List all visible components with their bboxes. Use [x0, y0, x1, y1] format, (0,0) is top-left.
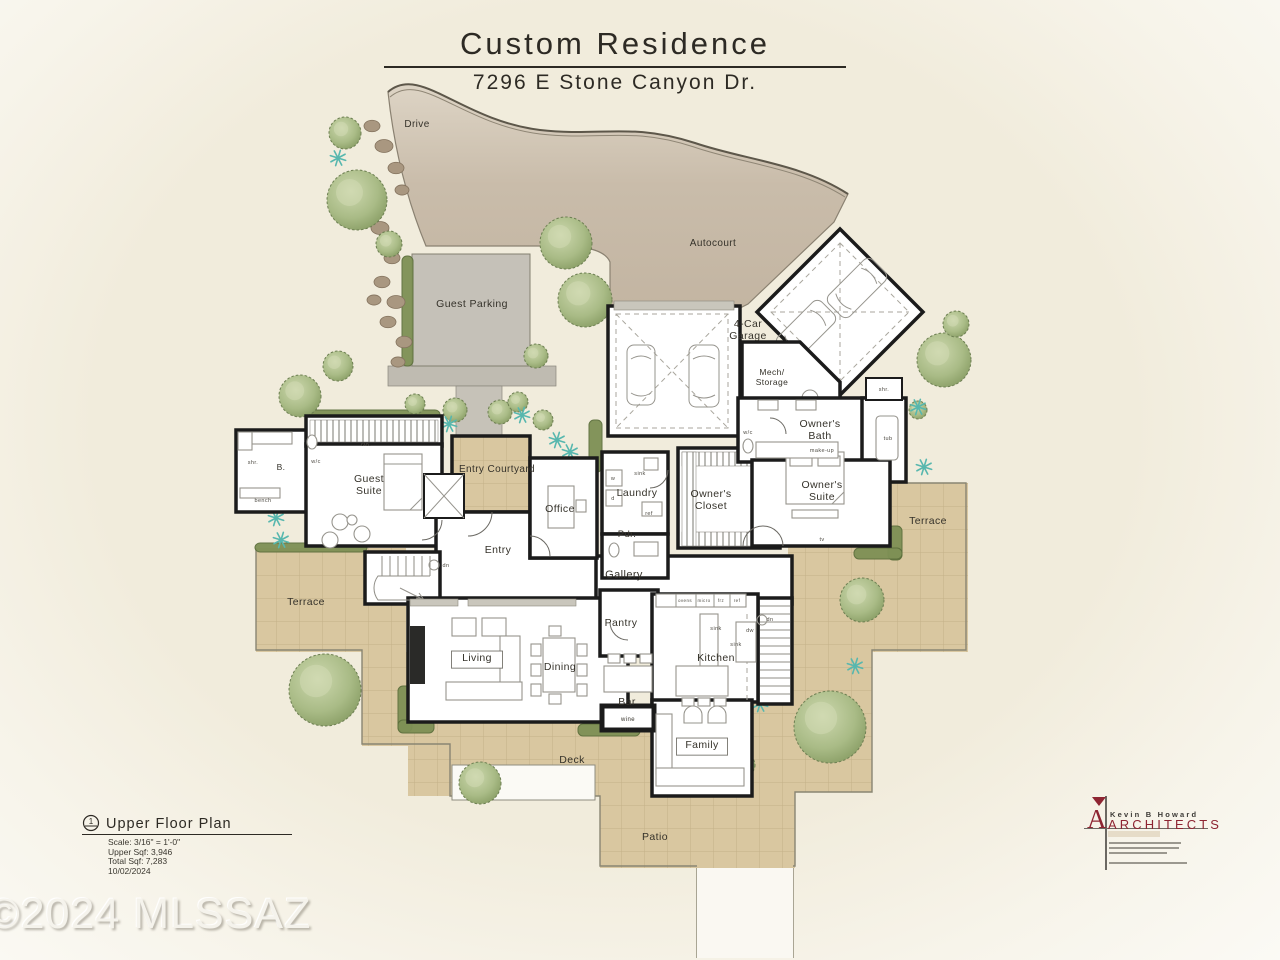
tree-highlight	[847, 585, 867, 605]
fixture-label: d	[611, 496, 614, 502]
room-label: Pdr.	[618, 529, 637, 540]
tree	[540, 217, 592, 269]
tree	[943, 311, 969, 337]
fixture-label: clo.	[361, 442, 371, 448]
title-block: 1 Upper Floor Plan Scale: 3/16" = 1'-0" …	[82, 814, 292, 876]
plan-name: Upper Floor Plan	[106, 816, 232, 832]
architect-address-line	[1109, 842, 1181, 844]
floor-plan-page: { "title": { "name": "Custom Residence",…	[0, 0, 1280, 960]
rock	[364, 120, 380, 132]
room-label: Entry Courtyard	[459, 464, 535, 475]
fixture-label: w/c	[310, 459, 320, 465]
title-underline	[384, 66, 846, 68]
tree-highlight	[447, 402, 458, 413]
garage-straight	[608, 306, 740, 436]
tree-highlight	[536, 413, 545, 422]
page-title: Custom Residence	[0, 26, 1230, 62]
rock	[375, 140, 393, 153]
walkway	[697, 868, 793, 958]
svg-text:1: 1	[89, 817, 94, 826]
fixture-label: shr.	[248, 460, 259, 466]
tree	[917, 333, 971, 387]
tree	[558, 273, 612, 327]
tree-highlight	[334, 122, 348, 136]
rock	[395, 185, 409, 195]
tree	[329, 117, 361, 149]
room-label: Gallery	[605, 569, 643, 581]
architect-website-line	[1109, 862, 1187, 864]
tree-highlight	[925, 341, 949, 365]
tree	[840, 578, 884, 622]
fixture-label: bench	[255, 498, 272, 504]
architect-address-line	[1109, 852, 1167, 854]
room-label: Bar	[618, 696, 636, 708]
room-label: Laundry	[617, 487, 658, 499]
tree-highlight	[380, 235, 392, 247]
architect-address-line	[1109, 847, 1179, 849]
fixture-label: micro	[698, 598, 711, 603]
room-label: Guest Parking	[436, 298, 508, 310]
agave-plant	[549, 432, 564, 447]
rock	[374, 276, 390, 288]
room-label: Patio	[642, 831, 668, 843]
room-label: GuestSuite	[354, 473, 384, 497]
room-label: Autocourt	[690, 238, 736, 249]
tree	[327, 170, 387, 230]
room-label: Owner'sCloset	[691, 488, 732, 512]
fixture-label: tv	[819, 537, 824, 543]
tree-highlight	[548, 225, 571, 248]
room-label: Drive	[404, 119, 429, 130]
fixture-label: w	[610, 476, 615, 482]
fireplace	[410, 626, 425, 684]
hedge	[402, 256, 413, 366]
rock	[387, 296, 405, 309]
tree	[323, 351, 353, 381]
rock	[391, 357, 405, 367]
room-label: Dining	[544, 661, 576, 673]
room-label: B.	[277, 462, 286, 472]
room-label: Office	[545, 503, 575, 515]
fixture-label: shr.	[879, 387, 890, 393]
fixture-label: sink	[730, 642, 741, 648]
agave-plant	[916, 459, 931, 474]
tree	[533, 410, 553, 430]
logo-letter-a: A	[1087, 804, 1107, 835]
room-label: wine	[620, 717, 635, 723]
plan-key-icon: 1	[82, 814, 100, 832]
fixture-label: ref	[734, 598, 741, 603]
tree-highlight	[528, 348, 539, 359]
fixture-label: tub	[884, 436, 893, 442]
fixture-label: ref	[645, 511, 653, 517]
tree-highlight	[805, 702, 837, 734]
plan-date: 10/02/2024	[108, 867, 292, 877]
fixture-label: w/c	[742, 430, 752, 436]
fixture-label: dn	[443, 563, 450, 569]
architect-logo: A Kevin B Howard ARCHITECTS	[1084, 796, 1208, 874]
hedge	[854, 548, 902, 559]
tree-highlight	[511, 395, 520, 404]
rock	[380, 316, 396, 328]
rock	[367, 295, 381, 305]
drawing-title: Custom Residence 7296 E Stone Canyon Dr.	[0, 26, 1230, 95]
tree	[459, 762, 501, 804]
fixture-label: dw	[746, 628, 754, 634]
room-label: Entry	[485, 544, 512, 556]
rock	[396, 336, 412, 348]
room-label: Living	[462, 652, 492, 664]
tree-highlight	[336, 179, 363, 206]
fixture-label: make-up	[810, 448, 834, 454]
room-label: Mech/Storage	[756, 367, 789, 387]
tree-highlight	[492, 404, 503, 415]
room-label: Family	[685, 739, 719, 751]
room-label: Terrace	[287, 596, 325, 608]
fixture-label: frz	[718, 598, 725, 603]
tree	[524, 344, 548, 368]
fixture-label: sink	[710, 626, 721, 632]
tree	[376, 231, 402, 257]
fixture-label: dn	[767, 617, 774, 623]
room-label: 4-CarGarage	[729, 318, 766, 342]
tree	[289, 654, 361, 726]
room-label: Pantry	[605, 617, 638, 629]
tree	[279, 375, 321, 417]
tree-highlight	[947, 315, 959, 327]
page-subtitle: 7296 E Stone Canyon Dr.	[0, 71, 1230, 95]
tree-highlight	[285, 381, 304, 400]
tree-highlight	[328, 356, 342, 370]
tree	[405, 394, 425, 414]
tree-highlight	[566, 281, 590, 305]
architect-firm: ARCHITECTS	[1108, 817, 1222, 832]
fixture-label: sink	[634, 471, 645, 477]
tree-highlight	[300, 665, 332, 697]
rock	[388, 162, 404, 174]
room-label: Terrace	[909, 515, 947, 527]
tree-highlight	[408, 397, 417, 406]
tree	[794, 691, 866, 763]
tree-highlight	[465, 768, 484, 787]
agave-plant	[330, 150, 345, 165]
room-label: Kitchen	[697, 652, 735, 664]
mls-watermark: ©2024 MLSSAZ	[0, 890, 311, 939]
room-label: Deck	[559, 754, 585, 766]
fixture-label: ovens	[678, 598, 692, 603]
